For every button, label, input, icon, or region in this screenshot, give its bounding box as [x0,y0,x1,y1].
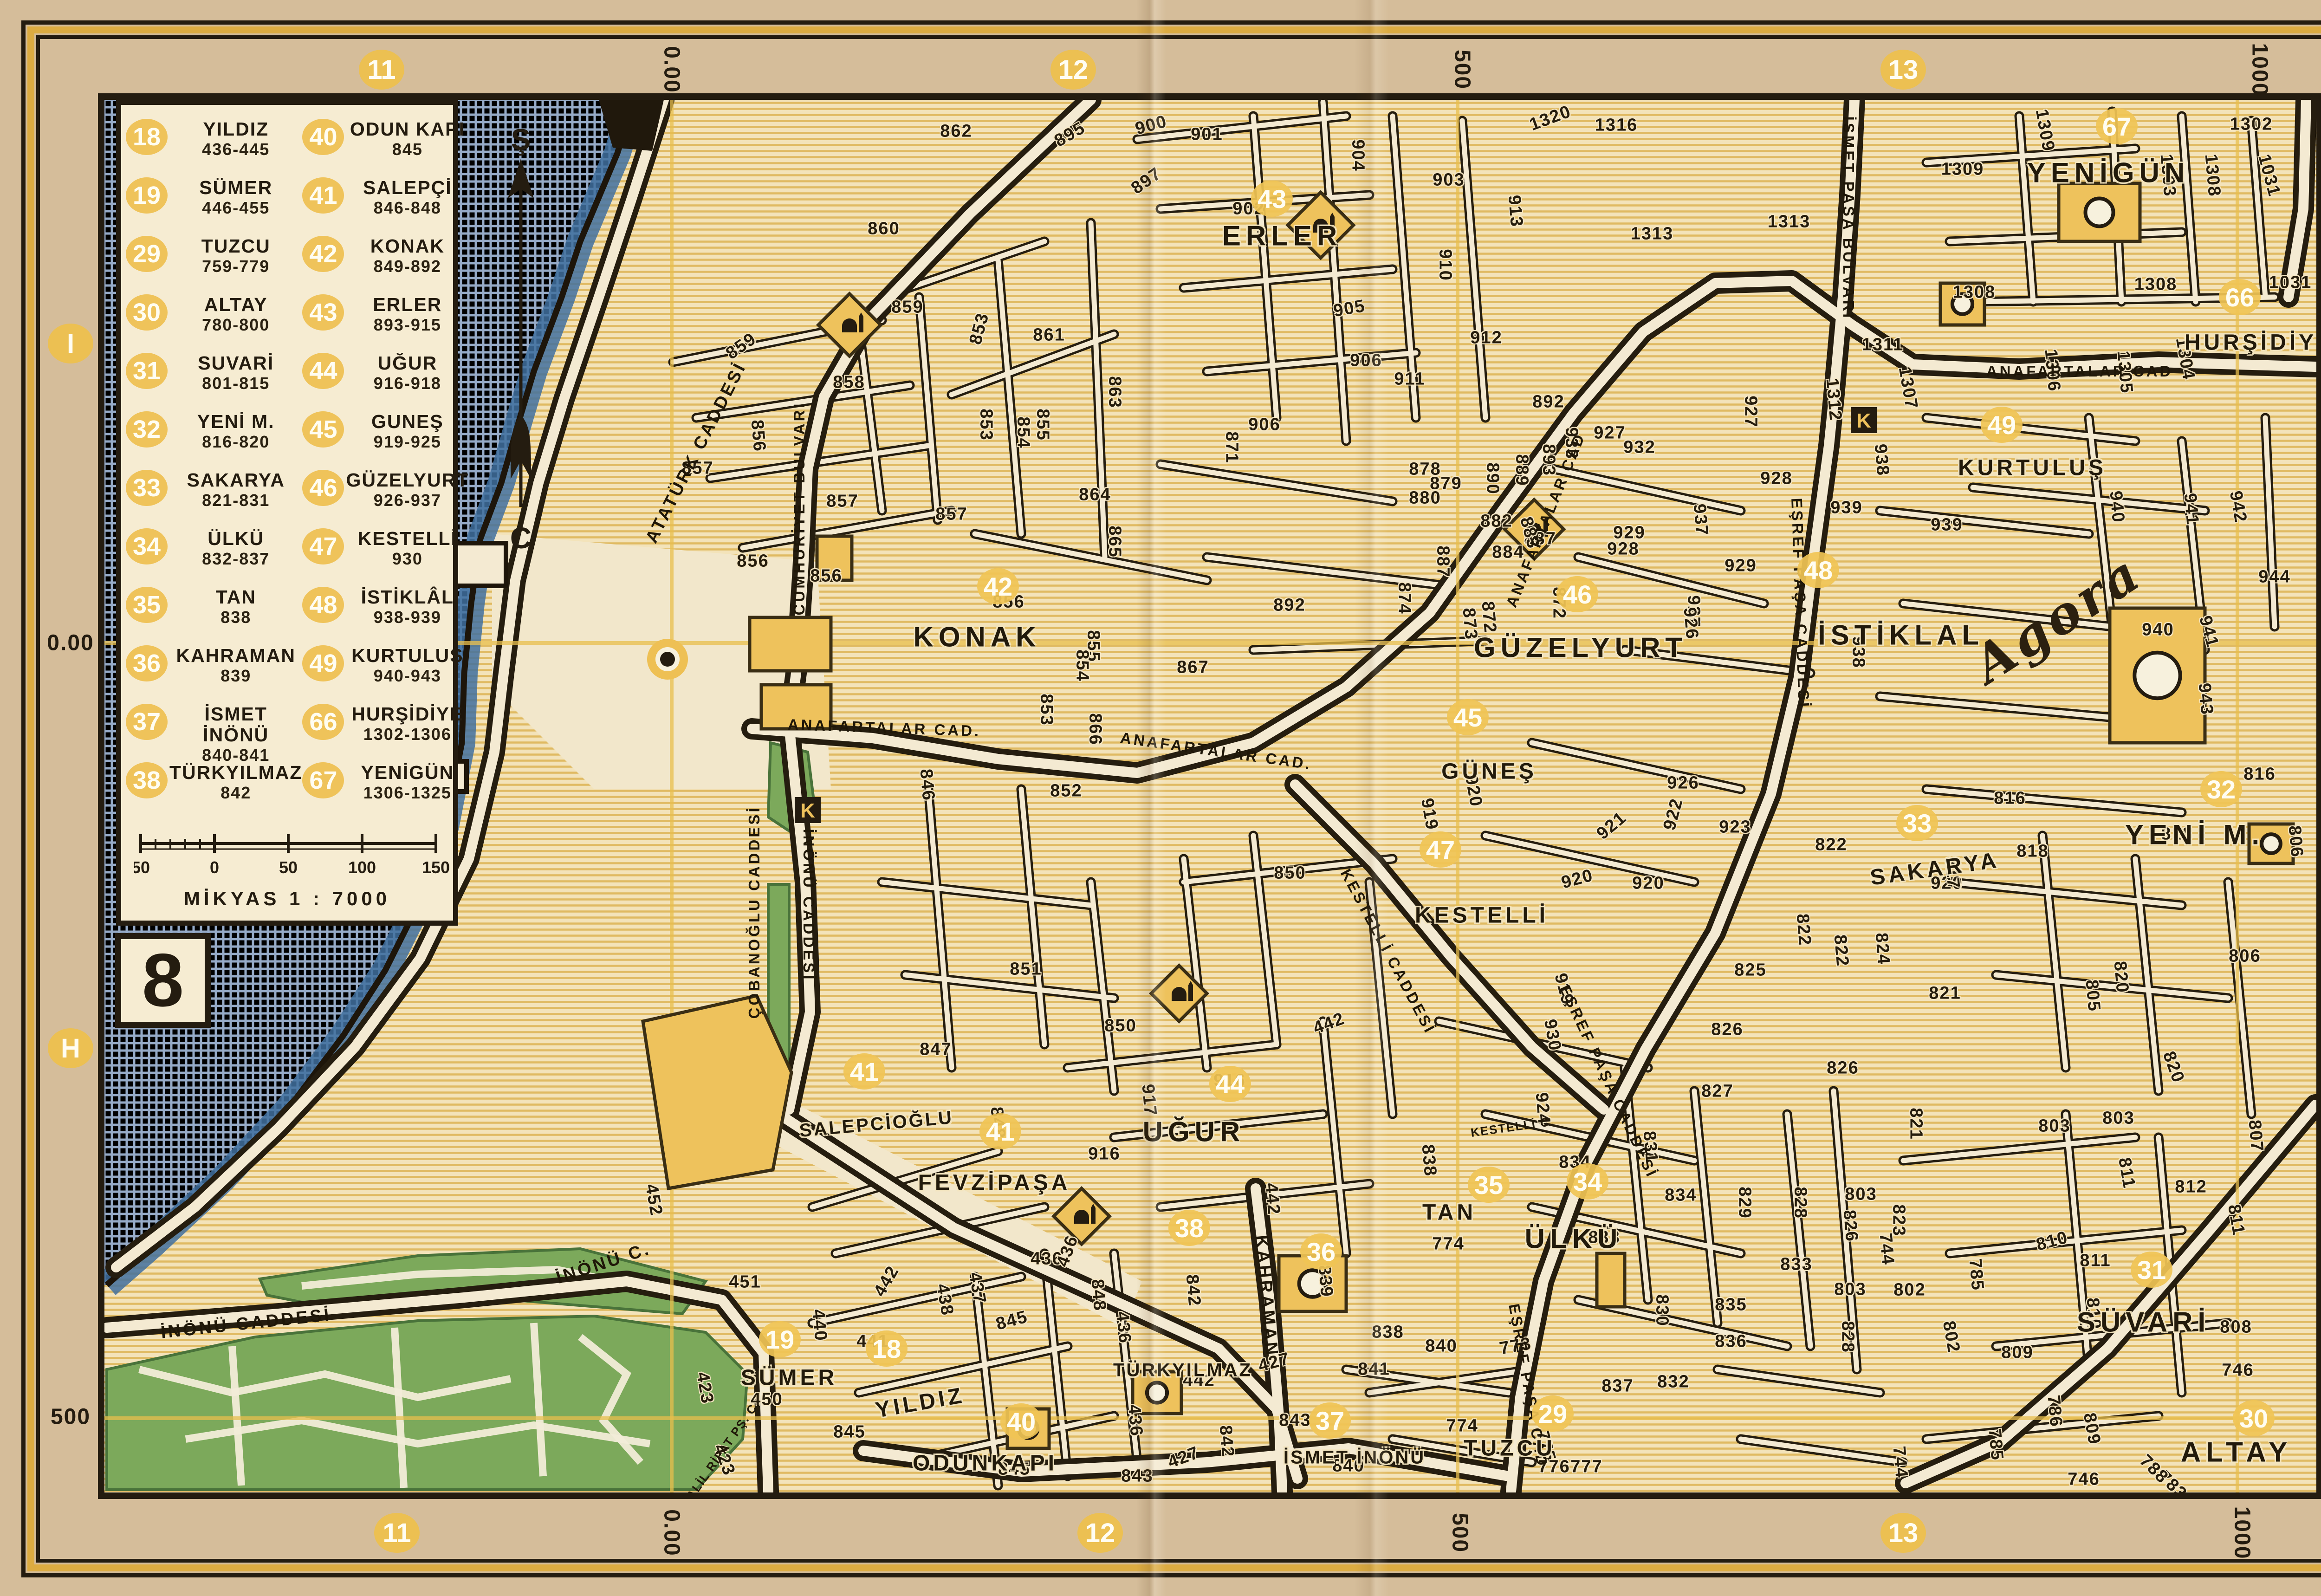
legend-entry-range: 916-918 [346,374,469,393]
legend-entry: 67 YENİGÜN 1306-1325 [302,762,469,821]
grid-marker-badge: 13 [1880,50,1926,90]
legend-entry-range: 849-892 [346,257,469,276]
grid-coordinate-label: 500 [1450,50,1475,90]
svg-text:150: 150 [422,858,450,877]
grid-marker-badge: 11 [359,50,404,90]
legend-entry-name: KESTELLİ [346,528,469,549]
page-number-box: 8 [115,933,211,1028]
legend-entry-number: 36 [126,645,168,681]
legend-entry-name: İSMET İNÖNÜ [169,704,302,746]
legend-entry-number: 33 [126,470,168,506]
legend-entry: 43 ERLER 893-915 [302,294,469,353]
legend-entry-range: 832-837 [169,549,302,569]
legend-entry-range: 938-939 [346,608,469,627]
legend-entry-number: 49 [302,645,344,681]
legend-entry: 36 KAHRAMAN 839 [126,645,302,704]
legend-entry-name: ÜLKÜ [169,528,302,549]
legend-entry: 42 KONAK 849-892 [302,236,469,294]
legend-entry: 18 YILDIZ 436-445 [126,119,302,177]
grid-coordinate-label: 500 [51,1404,91,1430]
legend-entry-name: SÜMER [169,177,302,198]
legend-entry-number: 18 [126,119,168,155]
legend-entry: 34 ÜLKÜ 832-837 [126,528,302,587]
scale-bar-graphic: 50050100150 [134,830,450,882]
grid-marker-badge: 11 [374,1513,420,1553]
legend-entry-range: 940-943 [346,666,469,686]
legend-entry-range: 930 [346,549,469,569]
legend-entry-number: 35 [126,587,168,623]
legend-entry: 30 ALTAY 780-800 [126,294,302,353]
legend-entry-range: 821-831 [169,491,302,510]
legend-entry-range: 780-800 [169,315,302,335]
grid-coordinate-label: 0.00 [47,630,94,656]
legend-entry-range: 846-848 [346,198,469,218]
legend-entry-range: 1302-1306 [346,725,469,744]
legend-entry: 19 SÜMER 446-455 [126,177,302,236]
compass-rose: Ş C [498,124,544,556]
legend-entry-name: SUVARİ [169,353,302,374]
legend-entry: 33 SAKARYA 821-831 [126,470,302,528]
legend-entry-number: 31 [126,353,168,389]
legend-entry-name: KURTULUŞ [346,645,469,666]
scale-caption: MİKYAS 1 : 7000 [134,888,440,910]
legend-entry: 32 YENİ M. 816-820 [126,411,302,470]
legend-entry: 47 KESTELLİ 930 [302,528,469,587]
legend-entry-name: GUNEŞ [346,411,469,432]
legend-entry-name: ODUN KAPI [346,119,469,140]
legend-entry: 66 HURŞİDİYE 1302-1306 [302,704,469,762]
grid-marker-badge: H [48,1028,93,1068]
legend-entry-name: TÜRKYILMAZ [169,762,302,783]
legend-entry: 49 KURTULUŞ 940-943 [302,645,469,704]
legend-columns: 18 YILDIZ 436-445 19 SÜMER 446-455 29 TU… [121,105,453,821]
legend-entry-number: 67 [302,762,344,798]
legend-entry-number: 32 [126,411,168,448]
legend-column-left: 18 YILDIZ 436-445 19 SÜMER 446-455 29 TU… [126,119,302,821]
legend-entry-number: 46 [302,470,344,506]
compass-north-label: Ş [498,124,544,154]
grid-coordinate-label: 1000 [2247,43,2273,97]
legend-entry-name: YILDIZ [169,119,302,140]
legend-entry-number: 41 [302,177,344,214]
legend-column-right: 40 ODUN KAPI 845 41 SALEPÇİ 846-848 42 K… [302,119,469,821]
legend-entry-range: 919-925 [346,432,469,452]
legend-entry-number: 29 [126,236,168,272]
compass-south-label: C [498,523,544,553]
legend-entry-name: UĞUR [346,353,469,374]
legend-entry-number: 48 [302,587,344,623]
legend-entry-name: KAHRAMAN [169,645,302,666]
svg-text:50: 50 [279,858,298,877]
grid-coordinate-label: 500 [1447,1513,1473,1553]
legend-entry-number: 40 [302,119,344,155]
grid-coordinate-label: 1000 [2230,1506,2255,1560]
legend-entry-range: 839 [169,666,302,686]
legend-entry-name: SAKARYA [169,470,302,491]
legend-entry-number: 34 [126,528,168,564]
legend-entry-name: YENİGÜN [346,762,469,783]
legend-entry-name: İSTİKLÂL [346,587,469,608]
legend-entry-range: 436-445 [169,140,302,159]
legend-entry-name: TUZCU [169,236,302,257]
map-page: KK 8598598588578568578578568568568538618… [0,0,2321,1596]
legend-entry-number: 30 [126,294,168,331]
legend-entry: 45 GUNEŞ 919-925 [302,411,469,470]
legend-entry: 40 ODUN KAPI 845 [302,119,469,177]
legend-entry-name: YENİ M. [169,411,302,432]
grid-marker-badge: 13 [1880,1513,1926,1553]
legend-entry-number: 44 [302,353,344,389]
legend-entry-range: 838 [169,608,302,627]
legend-entry-range: 1306-1325 [346,783,469,803]
legend-entry: 46 GÜZELYURT 926-937 [302,470,469,528]
legend-entry-name: ALTAY [169,294,302,315]
grid-marker-badge: 12 [1077,1513,1123,1553]
legend-entry-range: 759-779 [169,257,302,276]
legend-entry-number: 47 [302,528,344,564]
svg-text:100: 100 [348,858,376,877]
legend-entry-range: 845 [346,140,469,159]
legend-entry-name: KONAK [346,236,469,257]
page-number: 8 [142,937,184,1024]
legend-entry-number: 38 [126,762,168,798]
legend-entry-name: TAN [169,587,302,608]
legend-entry: 48 İSTİKLÂL 938-939 [302,587,469,645]
grid-marker-badge: I [48,324,93,363]
legend-entry: 38 TÜRKYILMAZ 842 [126,762,302,821]
scale-bar: 50050100150 MİKYAS 1 : 7000 [134,830,440,909]
grid-coordinate-label: 0.00 [659,1509,685,1556]
legend-entry-number: 42 [302,236,344,272]
grid-coordinate-label: 0.00 [659,46,685,93]
legend-entry-name: SALEPÇİ [346,177,469,198]
legend-entry-name: HURŞİDİYE [346,704,469,725]
compass-arrow-icon [498,154,544,521]
svg-text:0: 0 [210,858,219,877]
legend-entry-name: ERLER [346,294,469,315]
legend-entry-name: GÜZELYURT [346,470,469,491]
legend-entry-number: 19 [126,177,168,214]
legend-entry-range: 926-937 [346,491,469,510]
legend-entry-range: 816-820 [169,432,302,452]
legend-entry-range: 893-915 [346,315,469,335]
legend-entry: 37 İSMET İNÖNÜ 840-841 [126,704,302,762]
legend-entry-number: 45 [302,411,344,448]
legend-entry-range: 446-455 [169,198,302,218]
legend-entry-number: 43 [302,294,344,331]
legend-entry: 35 TAN 838 [126,587,302,645]
legend: 18 YILDIZ 436-445 19 SÜMER 446-455 29 TU… [116,100,458,926]
legend-entry-number: 37 [126,704,168,740]
legend-entry: 29 TUZCU 759-779 [126,236,302,294]
svg-text:50: 50 [134,858,150,877]
legend-entry: 31 SUVARİ 801-815 [126,353,302,411]
grid-marker-badge: 12 [1050,50,1096,90]
legend-entry-range: 801-815 [169,374,302,393]
legend-entry-number: 66 [302,704,344,740]
legend-entry: 41 SALEPÇİ 846-848 [302,177,469,236]
legend-entry: 44 UĞUR 916-918 [302,353,469,411]
legend-entry-range: 842 [169,783,302,803]
